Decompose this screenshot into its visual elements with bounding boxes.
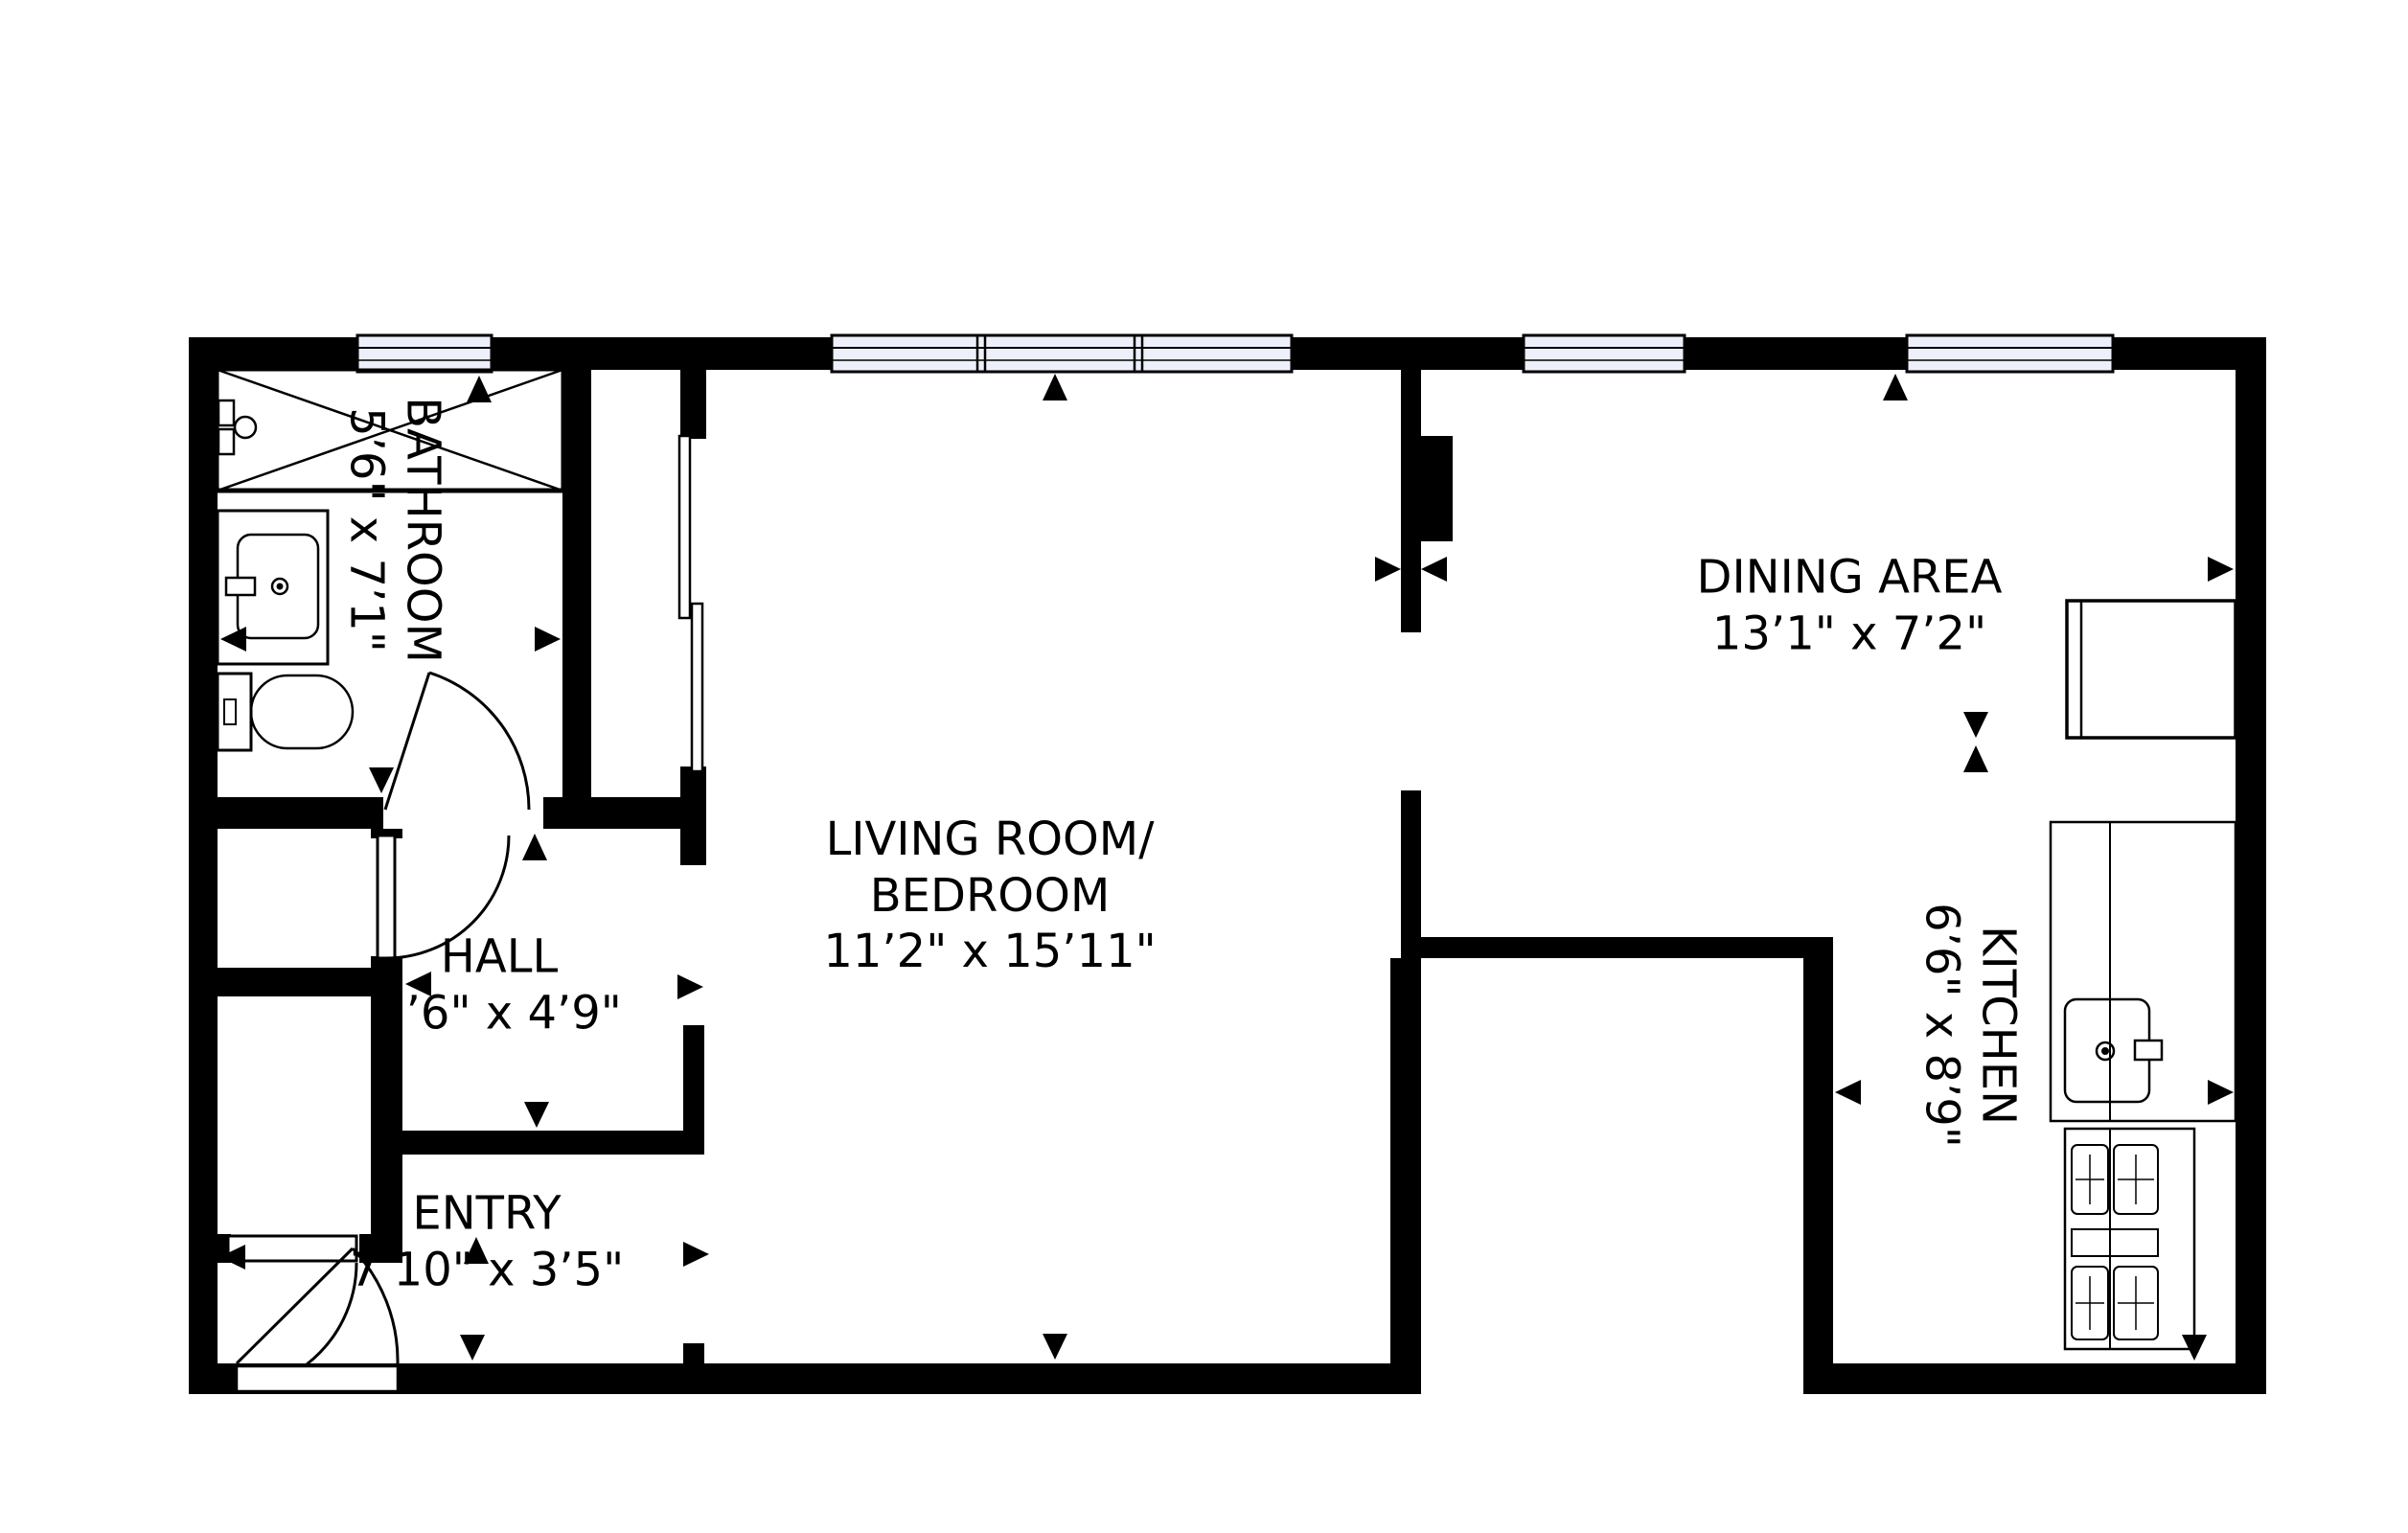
- entry-name: ENTRY: [350, 1185, 624, 1242]
- arrow-down-icon: [1043, 1334, 1067, 1360]
- dining-area-dims: 13’1" x 7’2": [1697, 606, 2003, 662]
- arrow-up-icon: [1043, 374, 1067, 400]
- dining-window-right: [1907, 335, 2113, 372]
- arrow-right-icon: [1375, 557, 1401, 582]
- wall-hall-bottom: [381, 1131, 704, 1155]
- wall-living-dining-upper: [1401, 370, 1421, 632]
- dining-area-label: DINING AREA 13’1" x 7’2": [1697, 549, 2003, 661]
- arrow-left-icon: [1421, 557, 1447, 582]
- wall-hall-right-lower: [683, 1025, 704, 1155]
- entry-label: ENTRY 7’10" x 3’5": [350, 1185, 624, 1297]
- wall-bathroom-right: [562, 370, 591, 829]
- hall-label: HALL 5’6" x 4’9": [377, 928, 622, 1041]
- hall-name: HALL: [377, 928, 622, 985]
- arrow-down-icon: [460, 1335, 485, 1361]
- arrow-left-icon: [220, 627, 246, 652]
- kitchen-dims: 6’6" x 8’9": [1914, 903, 1970, 1148]
- wall-notch-left: [1390, 958, 1421, 1394]
- arrow-right-icon: [677, 974, 703, 999]
- bathroom-label: BATHROOM 5’6" x 7’1": [338, 397, 450, 663]
- refrigerator: [2067, 601, 2236, 738]
- floor-plan-drawing: [0, 0, 2408, 1533]
- bathroom-window: [357, 335, 492, 372]
- entry-dims: 7’10" x 3’5": [350, 1242, 624, 1298]
- shower-valve: [218, 400, 256, 454]
- arrow-right-icon: [535, 627, 561, 652]
- arrow-up-icon: [1883, 374, 1908, 400]
- living-room-name: LIVING ROOM/ BEDROOM: [823, 812, 1156, 924]
- kitchen-name: KITCHEN: [1970, 903, 2027, 1148]
- wall-dining-pilaster: [1421, 436, 1453, 541]
- wall-notch-horizontal: [1401, 937, 1833, 958]
- dining-area-name: DINING AREA: [1697, 549, 2003, 606]
- wall-outer-right: [2236, 337, 2266, 1394]
- wall-closet-divider: [218, 968, 402, 996]
- arrow-down-icon: [1963, 712, 1988, 738]
- wall-kitchen-left: [1803, 958, 1833, 1394]
- bathroom-dims: 5’6" x 7’1": [338, 397, 395, 663]
- kitchen-counter: [2051, 822, 2236, 1121]
- closet2-door: [228, 1236, 356, 1364]
- arrow-up-icon: [467, 376, 492, 402]
- hall-dims: 5’6" x 4’9": [377, 985, 622, 1041]
- arrow-down-icon: [2182, 1335, 2207, 1361]
- wall-bathroom-bottom-left: [189, 797, 383, 829]
- arrow-right-icon: [683, 1242, 709, 1267]
- kitchen-sink: [2065, 999, 2162, 1102]
- arrow-right-icon: [2208, 557, 2234, 582]
- wall-living-left-upper: [680, 370, 706, 439]
- arrow-right-icon: [2208, 1080, 2234, 1105]
- wall-living-left-lower: [680, 766, 706, 865]
- toilet: [218, 674, 353, 750]
- wall-living-dining-lower: [1401, 790, 1421, 958]
- wall-outer-bottom-right: [1803, 1363, 2266, 1394]
- sliding-closet-door: [679, 436, 702, 771]
- arrow-down-icon: [369, 767, 394, 793]
- living-room-window: [832, 335, 1292, 372]
- bathroom-door: [385, 673, 529, 810]
- wall-entry-stub: [683, 1343, 704, 1363]
- arrow-left-icon: [1835, 1080, 1861, 1105]
- kitchen-fixtures: [2051, 601, 2236, 1349]
- living-room-dims: 11’2" x 15’11": [823, 924, 1156, 980]
- wall-outer-left: [189, 337, 218, 1394]
- arrow-up-icon: [1963, 745, 1988, 772]
- bathroom-name: BATHROOM: [395, 397, 451, 663]
- arrow-down-icon: [524, 1102, 549, 1128]
- stove-4-burner: [2065, 1129, 2194, 1349]
- dining-window-left: [1524, 335, 1685, 372]
- floor-plan: BATHROOM 5’6" x 7’1" HALL 5’6" x 4’9" EN…: [0, 0, 2408, 1533]
- kitchen-label: KITCHEN 6’6" x 8’9": [1914, 903, 2026, 1148]
- living-room-label: LIVING ROOM/ BEDROOM 11’2" x 15’11": [823, 812, 1156, 980]
- arrow-up-icon: [522, 834, 547, 860]
